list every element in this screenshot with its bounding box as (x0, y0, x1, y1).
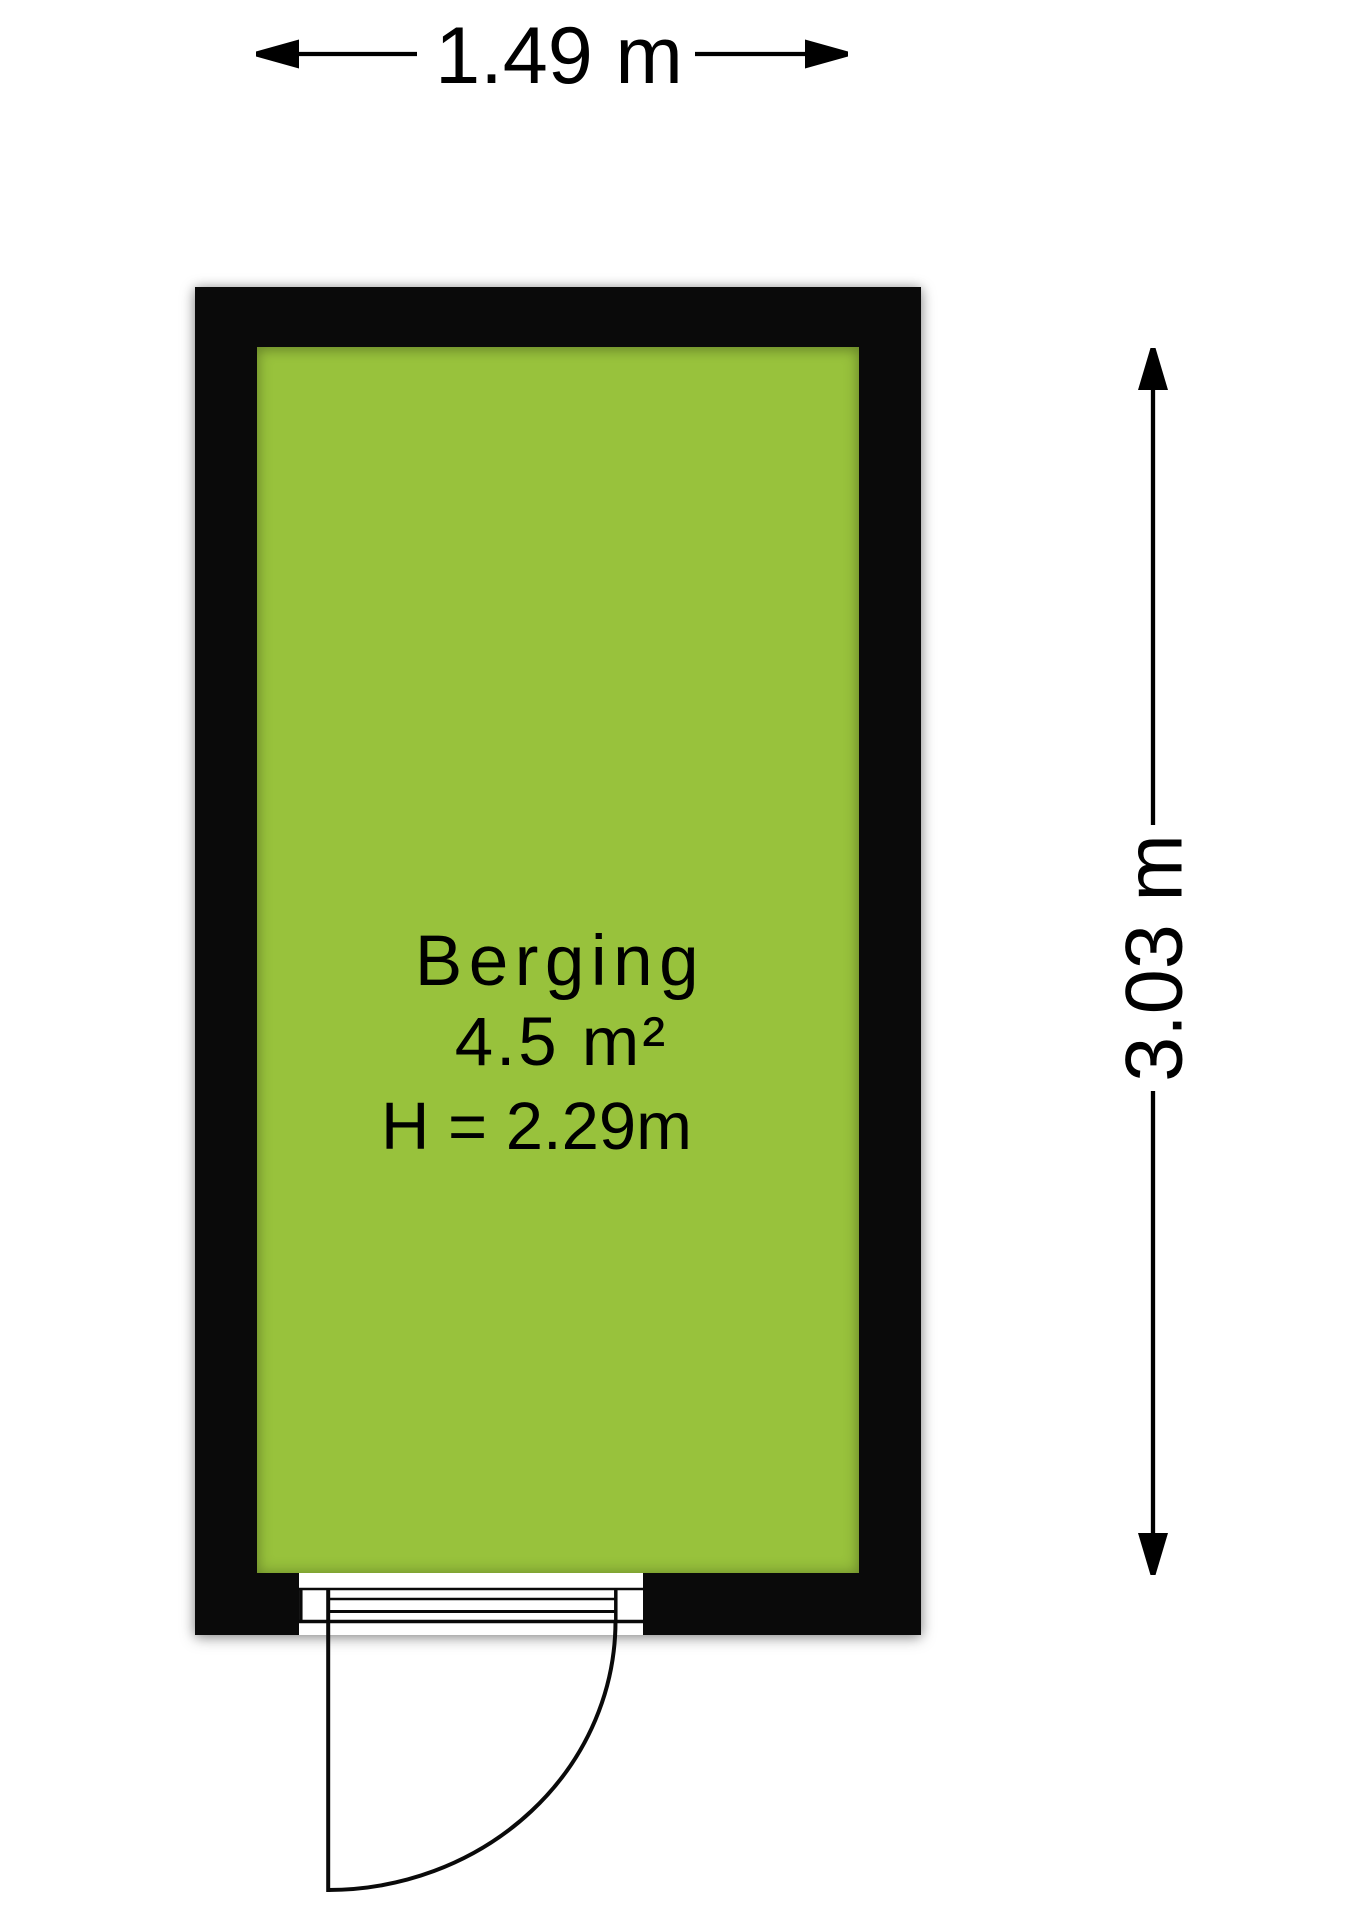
svg-text:3.03 m: 3.03 m (1110, 834, 1200, 1082)
svg-text:H = 2.29m: H = 2.29m (381, 1089, 692, 1164)
svg-text:1.49 m: 1.49 m (435, 11, 683, 101)
svg-text:4.5 m²: 4.5 m² (455, 1003, 669, 1080)
svg-text:Berging: Berging (415, 922, 705, 1001)
